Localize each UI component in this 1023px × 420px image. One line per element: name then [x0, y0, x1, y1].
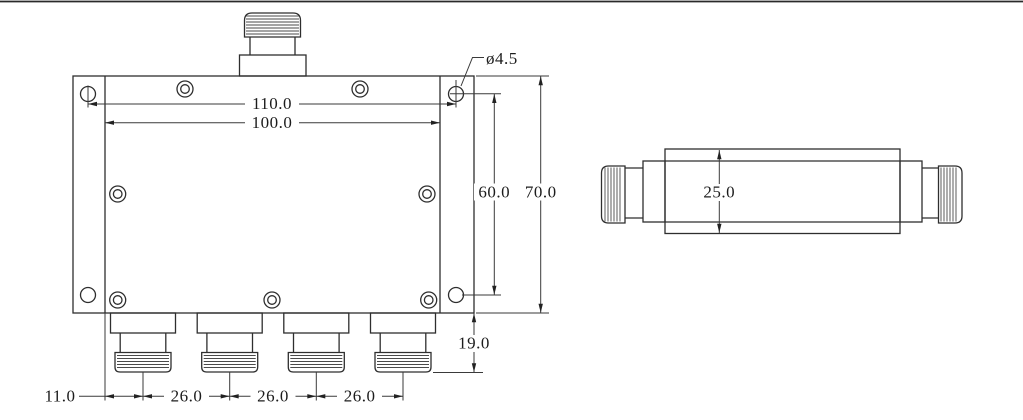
dim-body-width: 100.0 [105, 113, 440, 132]
screw-hole [110, 186, 126, 202]
dim-label-25: 25.0 [703, 183, 735, 202]
dim-hole-pitch-height: 60.0 [450, 94, 514, 295]
dim-label-26c: 26.0 [344, 387, 376, 406]
technical-drawing: 110.0 100.0 ø4.5 60.0 70.0 [0, 0, 1023, 420]
dim-label-dia: ø4.5 [486, 49, 518, 68]
screw-hole [264, 292, 280, 308]
dim-label-11: 11.0 [44, 387, 75, 406]
knurl-lines [941, 168, 956, 222]
bottom-connector-1 [111, 313, 176, 372]
screw-hole [419, 186, 435, 202]
bottom-connector-3 [284, 313, 349, 372]
knurl-lines [605, 168, 620, 222]
right-connector-nut [939, 166, 963, 223]
knurl-lines [377, 356, 429, 368]
drawing-canvas: 110.0 100.0 ø4.5 60.0 70.0 [0, 0, 1023, 420]
screw-hole [421, 292, 437, 308]
dim-label-110: 110.0 [252, 94, 292, 113]
bottom-connector-4 [371, 313, 436, 372]
left-connector-nut [602, 166, 626, 223]
bottom-connector-2 [197, 313, 262, 372]
knurl-lines [290, 356, 342, 368]
knurl-lines [117, 356, 169, 368]
dim-label-19: 19.0 [458, 334, 490, 353]
screw-hole [177, 81, 193, 97]
knurl-lines [204, 356, 256, 368]
knurl-lines [246, 16, 299, 34]
dim-label-60: 60.0 [478, 183, 510, 202]
screw-hole [110, 292, 126, 308]
dim-side-body-height: 25.0 [697, 150, 742, 233]
dim-label-100: 100.0 [252, 113, 293, 132]
dim-mount-hole-dia: ø4.5 [461, 49, 518, 86]
left-collar [643, 161, 665, 222]
mount-hole-bottom-right [449, 288, 464, 303]
right-collar [900, 161, 922, 222]
mount-hole-bottom-left [81, 288, 96, 303]
dim-label-26a: 26.0 [171, 387, 203, 406]
dim-label-26b: 26.0 [257, 387, 289, 406]
side-view: 25.0 [602, 149, 963, 234]
right-neck [922, 168, 939, 218]
top-connector [240, 13, 307, 76]
dim-hole-pitch-width: 110.0 [88, 80, 456, 113]
dim-label-70: 70.0 [525, 183, 557, 202]
dim-port-protrusion: 19.0 [433, 313, 494, 373]
screw-hole [352, 81, 368, 97]
front-view [73, 13, 474, 372]
left-neck [625, 168, 643, 218]
